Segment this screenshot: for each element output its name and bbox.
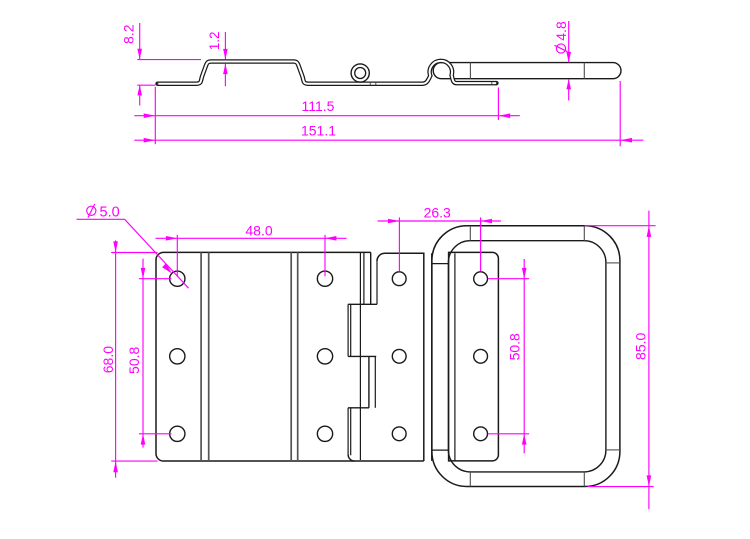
svg-text:50.8: 50.8 — [126, 346, 142, 373]
svg-text:1.2: 1.2 — [207, 31, 222, 50]
svg-text:8.2: 8.2 — [121, 24, 137, 44]
svg-text:50.8: 50.8 — [507, 333, 523, 360]
svg-text:111.5: 111.5 — [302, 98, 335, 114]
svg-text:5.0: 5.0 — [100, 204, 120, 220]
svg-text:151.1: 151.1 — [301, 123, 336, 139]
svg-text:48.0: 48.0 — [245, 222, 272, 238]
svg-text:85.0: 85.0 — [633, 332, 649, 359]
svg-text:26.3: 26.3 — [424, 205, 451, 221]
svg-text:4.8: 4.8 — [553, 21, 569, 41]
svg-text:68.0: 68.0 — [100, 346, 116, 373]
